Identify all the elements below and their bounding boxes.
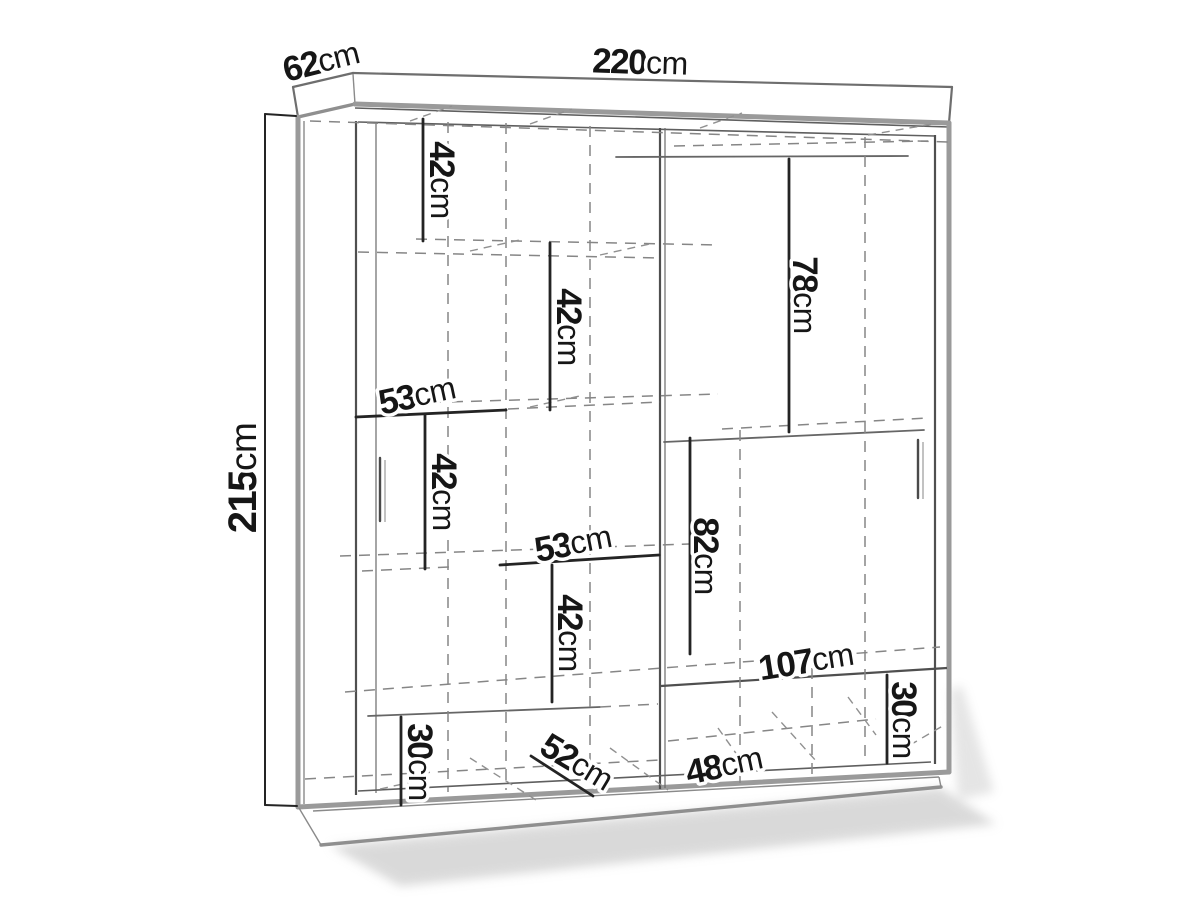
dimension-labels: 220cm 62cm 215cm 42cm 42cm 53cm 42cm 53c… (221, 33, 924, 801)
hidden-depth-lines (305, 106, 948, 800)
dim-label-left-gap-second: 42cm (550, 288, 589, 366)
svg-text:42cm: 42cm (425, 453, 464, 531)
dim-label-overall-depth: 62cm (279, 33, 364, 90)
dim-label-left-gap-third: 42cm (425, 453, 464, 531)
dim-label-hanging-height-upper: 78cm (786, 256, 825, 334)
dimension-lines (265, 114, 887, 806)
svg-text:107cm: 107cm (756, 634, 856, 687)
svg-text:53cm: 53cm (531, 516, 615, 569)
svg-text:42cm: 42cm (423, 141, 462, 219)
svg-text:78cm: 78cm (786, 256, 825, 334)
dim-label-left-gap-top: 42cm (423, 141, 462, 219)
dim-label-left-gap-fourth: 42cm (551, 594, 590, 672)
svg-text:62cm: 62cm (279, 33, 364, 90)
dim-label-bottom-height-right: 30cm (885, 681, 924, 759)
dim-label-overall-height: 215cm (221, 423, 265, 534)
svg-text:220cm: 220cm (592, 41, 689, 83)
dim-label-overall-width: 220cm (592, 41, 689, 83)
svg-text:82cm: 82cm (687, 517, 726, 595)
svg-text:30cm: 30cm (885, 681, 924, 759)
svg-text:52cm: 52cm (534, 725, 621, 798)
svg-text:215cm: 215cm (221, 423, 265, 534)
wardrobe-dimension-diagram: 220cm 62cm 215cm 42cm 42cm 53cm 42cm 53c… (0, 0, 1200, 900)
dim-label-shelf-width-lower: 53cm (531, 516, 615, 569)
dim-label-interior-depth: 52cm (534, 725, 621, 798)
svg-text:30cm: 30cm (401, 723, 440, 801)
dim-label-bottom-section-width: 107cm (756, 634, 856, 687)
wardrobe-outline (293, 73, 952, 845)
svg-text:42cm: 42cm (551, 594, 590, 672)
dim-label-bottom-height-left: 30cm (401, 723, 440, 801)
svg-text:42cm: 42cm (550, 288, 589, 366)
wardrobe-drawing-canvas: 220cm 62cm 215cm 42cm 42cm 53cm 42cm 53c… (0, 0, 1200, 900)
dim-label-hanging-height-lower: 82cm (687, 517, 726, 595)
